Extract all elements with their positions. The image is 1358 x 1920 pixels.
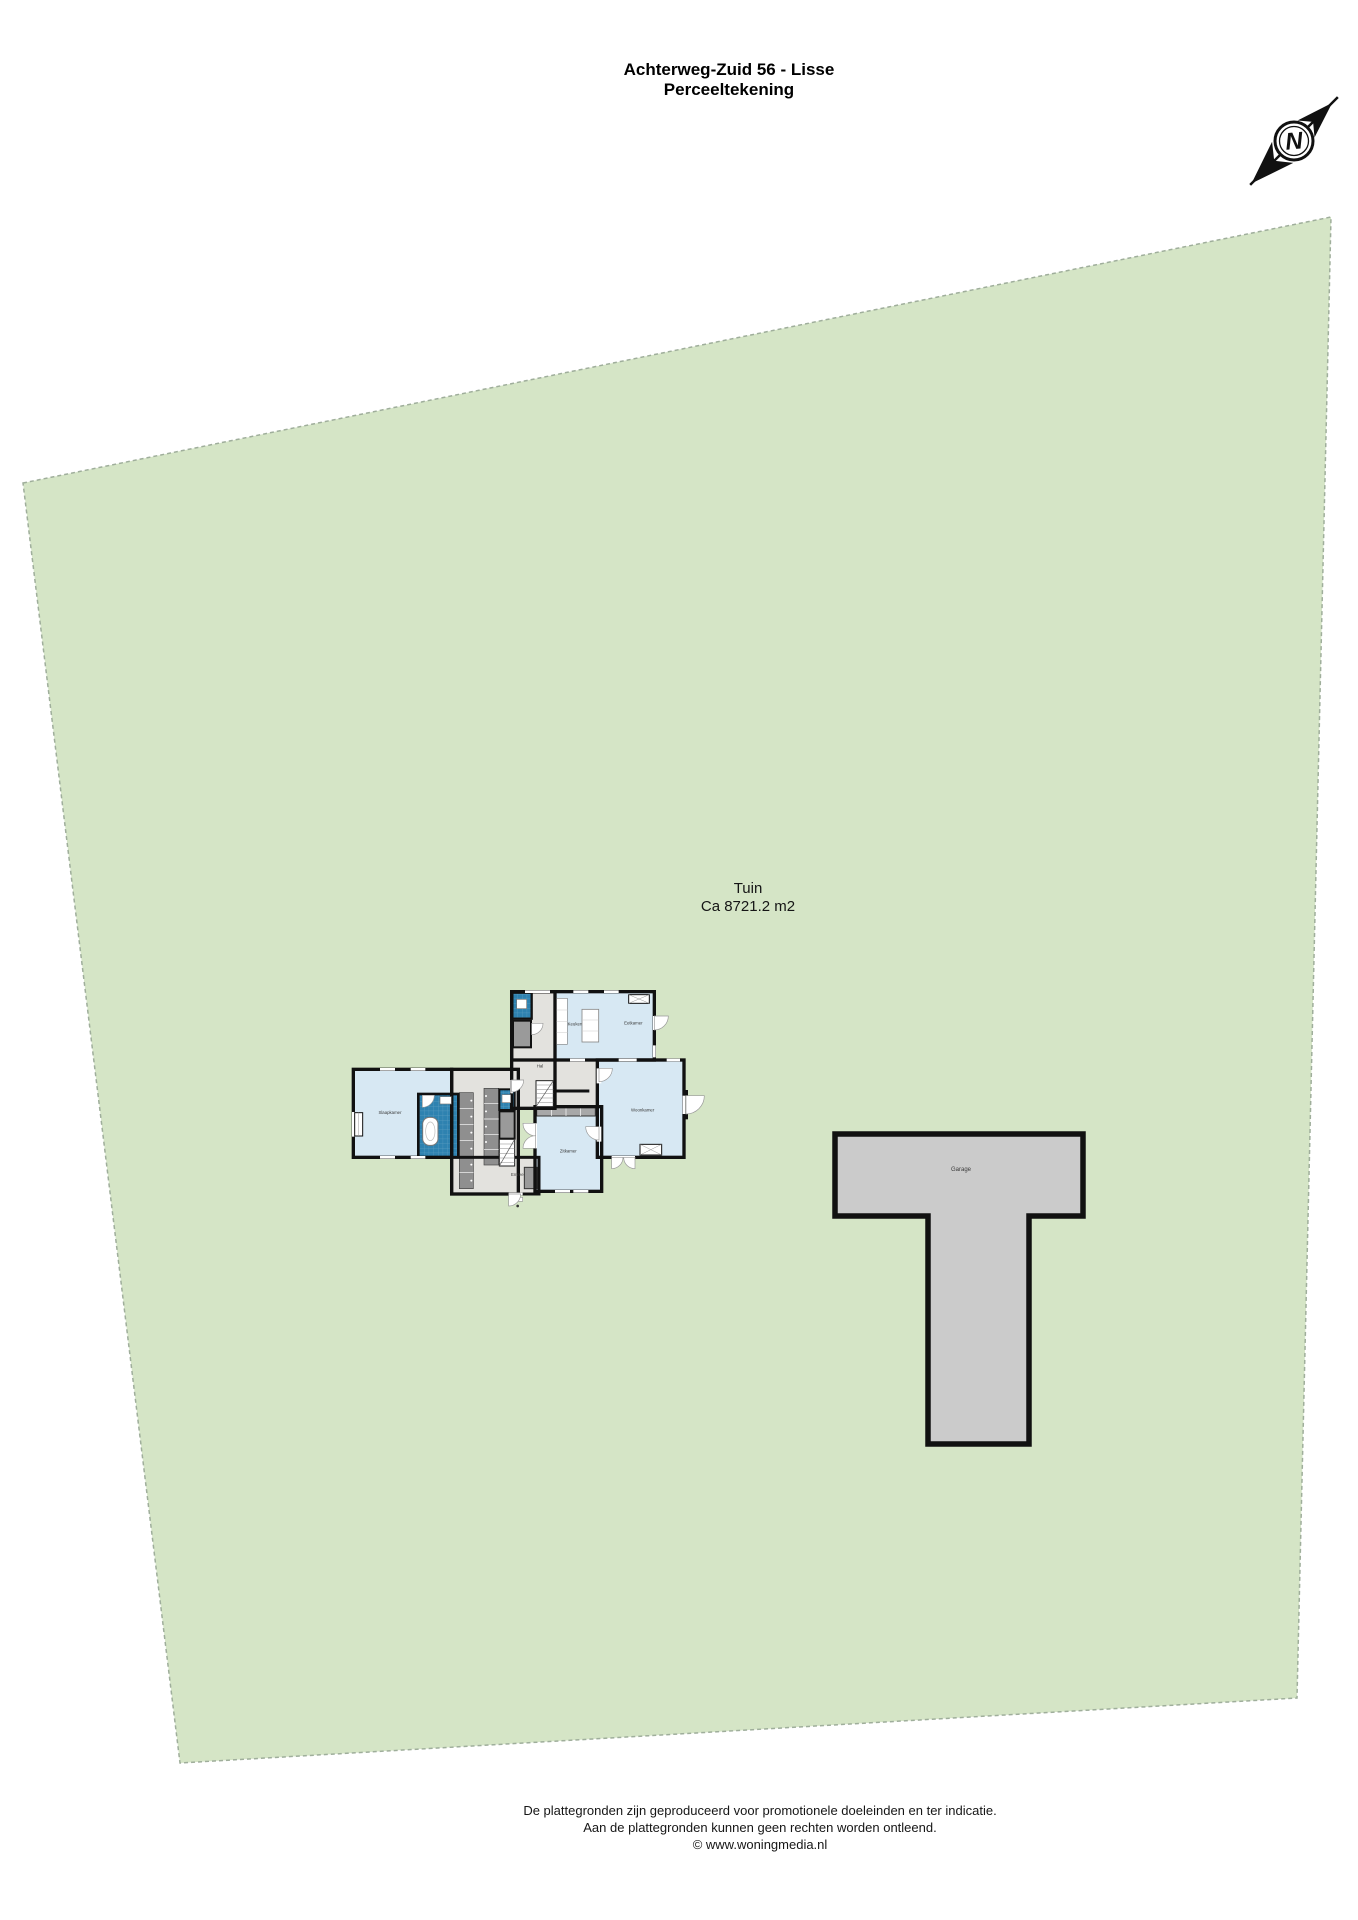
bedroom-window-seat (355, 1113, 363, 1136)
tech-room-west (499, 1111, 514, 1138)
page-subtitle: Perceeltekening (429, 80, 1029, 100)
garage-label: Garage (951, 1167, 972, 1173)
garden-name: Tuin (548, 880, 948, 898)
footer-disclaimer: De plattegronden zijn geproduceerd voor … (360, 1802, 1160, 1853)
stairs-main (536, 1081, 553, 1107)
bathtub (423, 1117, 438, 1145)
room-label-slaapkamer: Slaapkamer (378, 1110, 402, 1115)
garden-area: Ca 8721.2 m2 (548, 898, 948, 916)
parcel-polygon (23, 217, 1331, 1763)
wardrobe-strip-1 (459, 1093, 473, 1189)
skylight (629, 995, 650, 1004)
toilet-west-sink (502, 1095, 511, 1103)
bathroom-sink (440, 1097, 451, 1104)
room-label-entree: Entree (511, 1172, 524, 1177)
title-block: Achterweg-Zuid 56 - Lisse Perceeltekenin… (429, 60, 1029, 100)
wardrobe-strip-2 (484, 1088, 499, 1165)
garden-label-block: Tuin Ca 8721.2 m2 (548, 880, 948, 916)
room-label-hal: Hal (537, 1063, 544, 1068)
page-title: Achterweg-Zuid 56 - Lisse (429, 60, 1029, 80)
north-compass-icon: N (1237, 84, 1352, 199)
room-label-zitkamer: Zitkamer (560, 1148, 577, 1153)
living-window-seat (640, 1144, 662, 1155)
compass-north-letter: N (1284, 127, 1304, 155)
room-label-woonkamer: Woonkamer (631, 1107, 655, 1112)
tech-room-north (513, 1021, 531, 1048)
kitchen-island (582, 1009, 599, 1042)
room-label-eetkamer: Eetkamer (624, 1021, 643, 1026)
kitchen-cabinets (557, 998, 568, 1044)
footer-line-2: Aan de plattegronden kunnen geen rechten… (360, 1819, 1160, 1836)
toilet-north-sink (517, 999, 527, 1008)
room-label-keuken: Keuken (568, 1022, 583, 1027)
stairs-west (499, 1139, 514, 1166)
site-plan-canvas: Garage (0, 0, 1358, 1920)
footer-line-3: © www.woningmedia.nl (360, 1836, 1160, 1853)
perceel-drawing-page: Garage (0, 0, 1358, 1920)
entrance-marker (516, 1205, 519, 1208)
footer-line-1: De plattegronden zijn geproduceerd voor … (360, 1802, 1160, 1819)
